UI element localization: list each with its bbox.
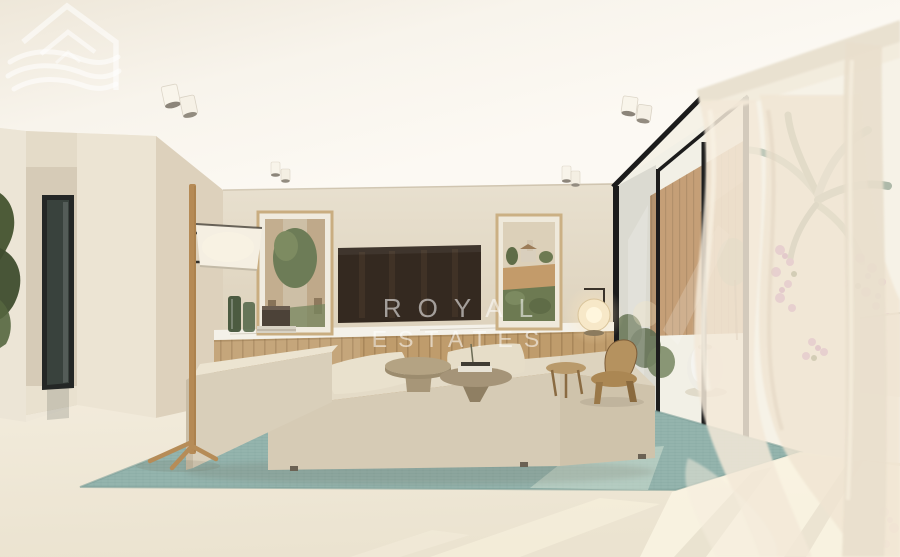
coffee-table-top bbox=[385, 357, 451, 375]
center-column bbox=[77, 133, 156, 418]
sofa-foot bbox=[290, 466, 298, 471]
art-cypress bbox=[506, 247, 518, 265]
green-glass-vase bbox=[228, 296, 241, 332]
wall-above-hallway bbox=[26, 131, 77, 167]
art-olive-tree bbox=[505, 291, 525, 305]
lamp-reflection bbox=[633, 301, 659, 327]
table-books bbox=[458, 366, 492, 372]
interior-render-image: ROYAL ESTATES bbox=[0, 0, 900, 557]
table-book-dark bbox=[461, 362, 490, 366]
green-glass-vase bbox=[243, 302, 255, 332]
hallway-door bbox=[42, 195, 74, 420]
spotlight-icon bbox=[636, 104, 652, 124]
sofa-foot bbox=[520, 462, 528, 467]
door-reflection bbox=[47, 388, 69, 420]
table-lamp bbox=[564, 285, 624, 345]
lamp-shade-glow bbox=[202, 232, 254, 262]
artwork-tuscan-landscape bbox=[497, 215, 561, 329]
art-tree-highlight bbox=[274, 231, 298, 261]
decor-box-top bbox=[262, 306, 290, 310]
tv-panel bbox=[338, 245, 481, 323]
scene bbox=[0, 0, 900, 557]
sofa-foot bbox=[638, 454, 646, 459]
lamp-base bbox=[584, 330, 604, 336]
art-tree bbox=[539, 251, 553, 263]
art-olive-tree bbox=[529, 298, 551, 314]
lamp-bulb bbox=[586, 307, 602, 323]
spotlight-icon bbox=[621, 96, 639, 117]
